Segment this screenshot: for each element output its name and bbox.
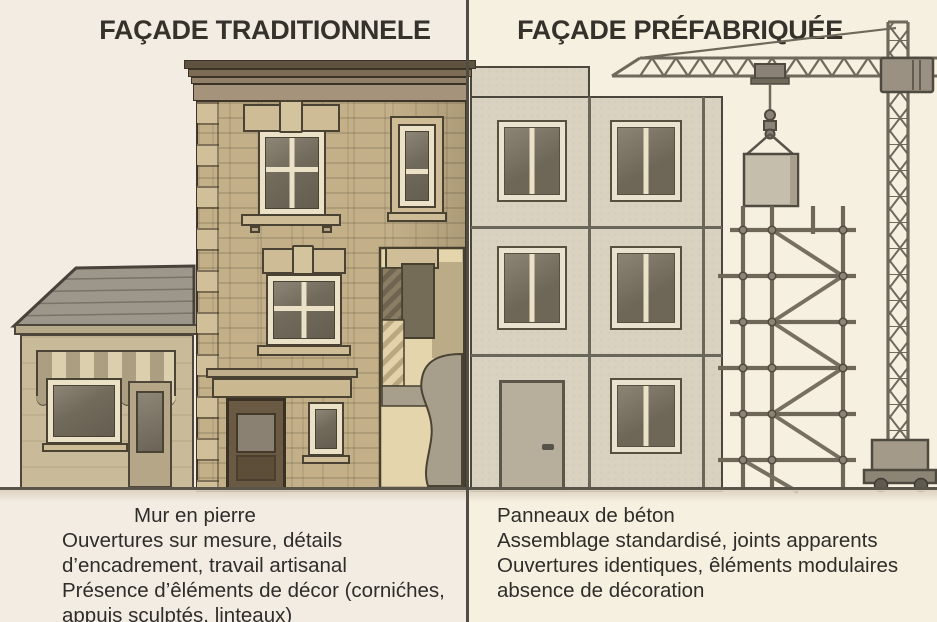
shop-door [128, 381, 172, 488]
caption-line: Ouvertures identiques, êléments modulair… [497, 553, 927, 578]
tall-window [398, 124, 436, 208]
panel-divider [466, 0, 469, 622]
prefab-parapet [470, 66, 590, 100]
caption-line: Présence d’êléments de décor (cornićhes, [62, 578, 462, 603]
entrance-lintel-top [206, 368, 358, 378]
cornice-band-4 [193, 84, 467, 101]
prefab-door [499, 380, 565, 492]
upper-window-glass [265, 137, 319, 209]
right-caption: Panneaux de béton Assemblage standardisé… [497, 503, 927, 603]
caption-line: d’encadrement, travail artisanal [62, 553, 462, 578]
upper-window-sill [241, 214, 341, 226]
panel-joint-vertical-1 [588, 97, 591, 491]
entrance-small-window-sill [302, 455, 350, 464]
crane-counterweight [881, 58, 933, 92]
caption-line: Panneaux de béton [497, 503, 927, 528]
cornice-band-3 [191, 77, 469, 84]
corner-quoins [197, 102, 219, 488]
recessed-passage [378, 246, 466, 492]
cornice-band-2 [188, 69, 472, 77]
shop-roof [10, 260, 200, 332]
caption-line: Assemblage standardisé, joints apparents [497, 528, 927, 553]
concrete-panel-load [744, 154, 798, 206]
entrance-lintel [212, 378, 352, 398]
entrance-small-window-glass [315, 409, 337, 449]
tall-window-glass [405, 131, 429, 201]
lower-window [266, 274, 342, 346]
upper-sill-bracket-right [322, 226, 332, 233]
lower-window-sill [257, 345, 351, 356]
shop-window [46, 378, 122, 444]
left-caption: Mur en pierre Ouvertures sur mesure, dét… [62, 503, 462, 622]
prefab-window-glass [504, 253, 560, 323]
entrance-small-window [308, 402, 344, 456]
cornice-band-1 [184, 60, 476, 69]
lower-window-glass [273, 281, 335, 339]
caption-line: appuis sculptés, linteaux) [62, 603, 462, 622]
shop-window-glass [53, 385, 115, 437]
traditional-door-panel [236, 455, 276, 481]
scaffold-braces [743, 230, 843, 492]
prefab-window-glass [504, 127, 560, 195]
traditional-door [226, 398, 286, 492]
scaffolding [714, 200, 866, 494]
crane-trolley-and-hook [746, 64, 794, 155]
crane-base [864, 440, 936, 492]
prefab-door-handle [542, 444, 554, 450]
caption-line: Ouvertures sur mesure, détails [62, 528, 462, 553]
tall-window-sill [387, 212, 447, 222]
upper-window-keystone [279, 100, 303, 133]
prefab-window-f2-a [497, 246, 567, 330]
shop-door-glass [136, 391, 164, 453]
left-panel-title: FAÇADE TRADITIONNELE [55, 15, 475, 46]
lower-window-keystone [292, 245, 314, 275]
traditional-door-glass [236, 413, 276, 453]
shop-eaves-board [14, 324, 198, 335]
caption-line: Mur en pierre [62, 503, 462, 528]
caption-line: absence de décoration [497, 578, 927, 603]
shop-window-sill [42, 443, 128, 452]
prefab-window-f1-a [497, 120, 567, 202]
upper-window [258, 130, 326, 216]
facade-comparison-infographic: FAÇADE TRADITIONNELE FAÇADE PRÉFABRIQUÉE… [0, 0, 937, 622]
upper-sill-bracket-left [250, 226, 260, 233]
scaffold-frame [718, 206, 856, 488]
